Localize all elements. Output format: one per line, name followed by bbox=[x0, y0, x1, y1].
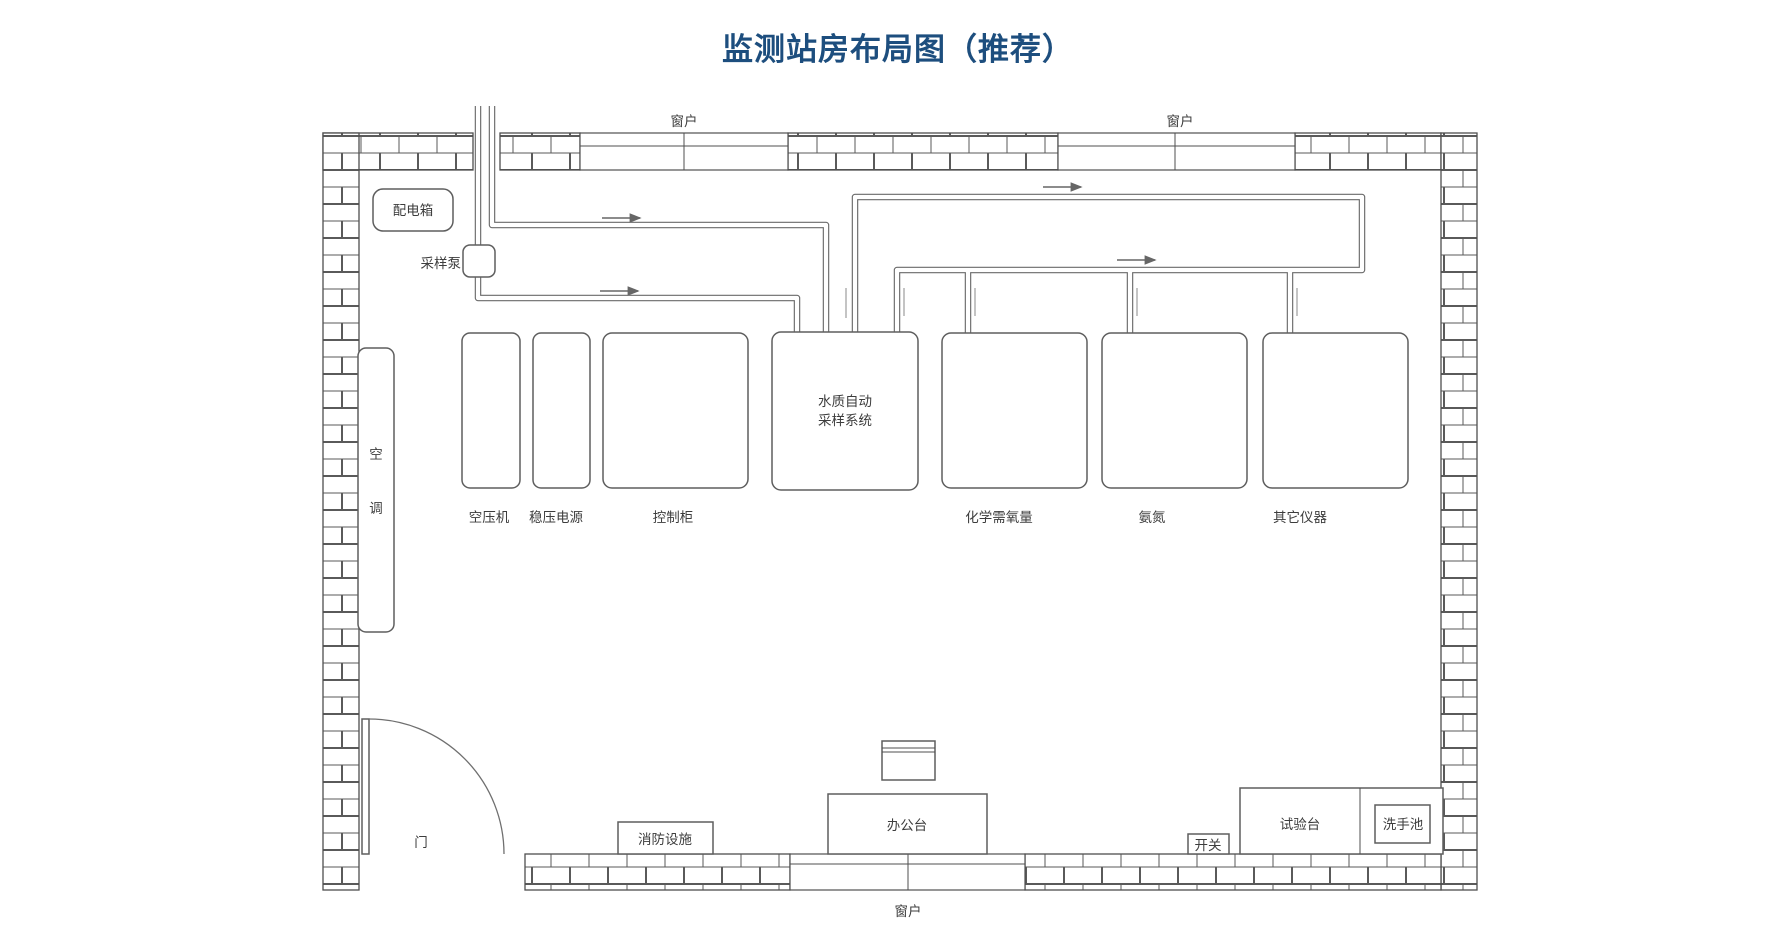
sampling-pump-label: 采样泵 bbox=[421, 256, 462, 271]
window-label: 窗户 bbox=[895, 903, 922, 919]
regulated-power-label: 稳压电源 bbox=[529, 510, 583, 525]
air-conditioner-label: 空 bbox=[369, 447, 383, 462]
pipe-distribution-loop bbox=[855, 197, 1362, 336]
distribution-box-label: 配电箱 bbox=[393, 203, 434, 218]
ammonia-analyzer-label: 氨氮 bbox=[1139, 510, 1167, 525]
wall-segment bbox=[788, 133, 1058, 170]
water-sampling-system-label: 采样系统 bbox=[818, 413, 872, 428]
light-switch: 开关 bbox=[1188, 834, 1229, 854]
air-conditioner: 空 调 bbox=[358, 348, 394, 632]
page-title: 监测站房布局图（推荐） bbox=[722, 32, 1074, 67]
wall-segment-right bbox=[1441, 133, 1477, 890]
office-desk: 办公台 bbox=[828, 794, 987, 854]
fire-equipment: 消防设施 bbox=[618, 822, 713, 854]
ammonia-analyzer: 氨氮 bbox=[1102, 333, 1247, 525]
floor-plan-page: 监测站房布局图（推荐） bbox=[0, 0, 1772, 943]
air-compressor: 空压机 bbox=[462, 333, 520, 525]
sink: 洗手池 bbox=[1375, 805, 1430, 843]
air-compressor-label: 空压机 bbox=[469, 510, 510, 525]
window-top-right: 窗户 bbox=[1058, 113, 1295, 170]
door-swing-arc bbox=[369, 719, 504, 854]
office-desk-label: 办公台 bbox=[887, 818, 928, 833]
control-cabinet-label: 控制柜 bbox=[653, 510, 694, 525]
other-instruments: 其它仪器 bbox=[1263, 333, 1408, 525]
wall-segment bbox=[525, 854, 790, 890]
wall-segment bbox=[1295, 133, 1441, 170]
water-sampling-system-label: 水质自动 bbox=[818, 394, 872, 409]
regulated-power-supply: 稳压电源 bbox=[529, 333, 590, 525]
distribution-box: 配电箱 bbox=[373, 189, 453, 231]
sink-label: 洗手池 bbox=[1383, 817, 1424, 832]
door: 门 bbox=[362, 719, 504, 854]
door-leaf bbox=[362, 719, 369, 854]
cod-analyzer-label: 化学需氧量 bbox=[965, 510, 1033, 525]
chair bbox=[882, 741, 935, 780]
window-label: 窗户 bbox=[1167, 113, 1194, 129]
water-sampling-system: 水质自动 采样系统 bbox=[772, 332, 918, 490]
wall-segment-left bbox=[323, 133, 359, 890]
light-switch-label: 开关 bbox=[1195, 838, 1222, 853]
window-label: 窗户 bbox=[671, 113, 698, 129]
floor-plan-svg: 监测站房布局图（推荐） bbox=[0, 0, 1772, 943]
other-instruments-label: 其它仪器 bbox=[1273, 509, 1327, 525]
window-top-left: 窗户 bbox=[580, 113, 788, 170]
control-cabinet: 控制柜 bbox=[603, 333, 748, 525]
wall-segment bbox=[1025, 854, 1441, 890]
wall-segment bbox=[500, 133, 580, 170]
window-bottom: 窗户 bbox=[790, 854, 1025, 919]
cod-analyzer: 化学需氧量 bbox=[942, 333, 1087, 525]
sampling-pump: 采样泵 bbox=[421, 245, 496, 277]
door-label: 门 bbox=[414, 835, 428, 850]
test-bench-label: 试验台 bbox=[1280, 817, 1321, 832]
fire-equipment-label: 消防设施 bbox=[638, 832, 692, 847]
air-conditioner-label: 调 bbox=[369, 501, 383, 516]
